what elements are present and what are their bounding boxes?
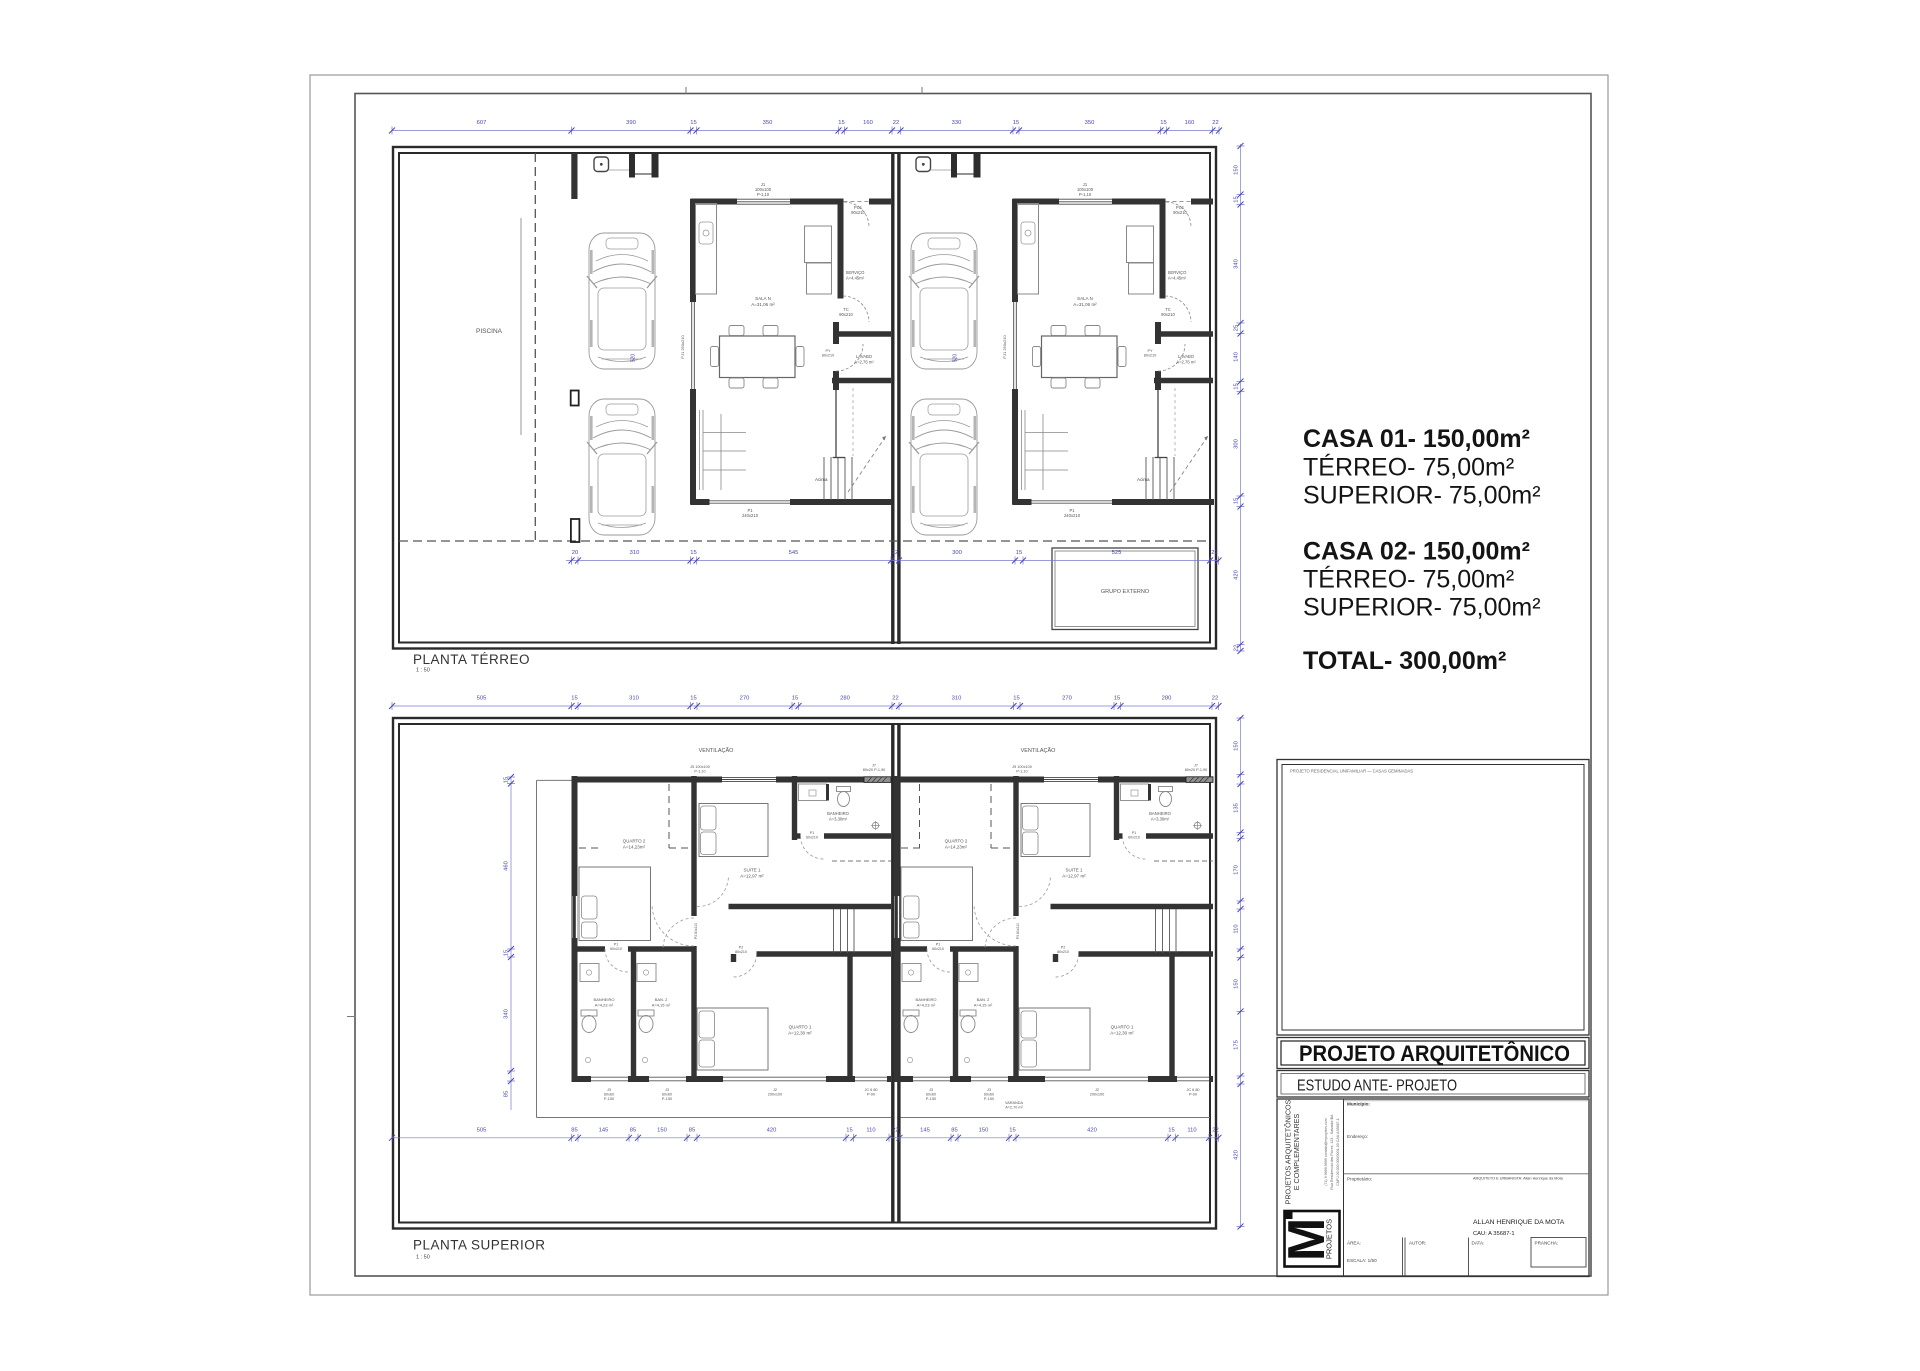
svg-text:280: 280 bbox=[840, 696, 850, 702]
svg-text:PROJETO ARQUITETÔNICO: PROJETO ARQUITETÔNICO bbox=[1299, 1041, 1570, 1066]
svg-text:A=4,23 m²: A=4,23 m² bbox=[595, 1003, 614, 1008]
svg-text:P-1,10: P-1,10 bbox=[757, 192, 770, 197]
svg-text:330: 330 bbox=[952, 120, 962, 126]
svg-text:GRUPO EXTERNO: GRUPO EXTERNO bbox=[1101, 589, 1150, 595]
svg-text:A=2,70 m²: A=2,70 m² bbox=[1005, 1106, 1023, 1110]
svg-text:420: 420 bbox=[767, 1128, 777, 1134]
svg-text:JC 6 80: JC 6 80 bbox=[864, 1088, 877, 1092]
svg-text:310: 310 bbox=[630, 550, 640, 556]
svg-text:15: 15 bbox=[504, 777, 510, 783]
svg-text:420: 420 bbox=[1234, 1150, 1240, 1160]
svg-text:Rua Residencial das Flores, 12: Rua Residencial das Flores, 123 - Salvad… bbox=[1330, 1114, 1334, 1190]
svg-text:ÁREA:: ÁREA: bbox=[1347, 1240, 1361, 1246]
svg-text:85: 85 bbox=[571, 1128, 577, 1134]
svg-text:22: 22 bbox=[893, 120, 899, 126]
svg-text:390: 390 bbox=[626, 120, 636, 126]
svg-text:PROJETO RESIDENCIAL UNIFAMILIA: PROJETO RESIDENCIAL UNIFAMILIAR — CASAS … bbox=[1290, 769, 1413, 774]
svg-text:CASA 02- 150,00m²: CASA 02- 150,00m² bbox=[1303, 538, 1530, 566]
svg-text:160: 160 bbox=[1185, 120, 1195, 126]
svg-text:J2: J2 bbox=[773, 1088, 777, 1092]
svg-text:QUARTO 1: QUARTO 1 bbox=[789, 1025, 812, 1030]
svg-text:1 : 50: 1 : 50 bbox=[416, 668, 430, 674]
svg-text:150: 150 bbox=[1234, 979, 1240, 989]
svg-text:22: 22 bbox=[1212, 120, 1218, 126]
svg-text:DATA:: DATA: bbox=[1472, 1241, 1485, 1246]
svg-text:TÉRREO- 75,00m²: TÉRREO- 75,00m² bbox=[1303, 453, 1514, 482]
svg-text:TÉRREO- 75,00m²: TÉRREO- 75,00m² bbox=[1303, 565, 1514, 594]
svg-text:ESCALA: 1/50: ESCALA: 1/50 bbox=[1347, 1258, 1377, 1263]
svg-text:80x20 P-1,90: 80x20 P-1,90 bbox=[863, 768, 886, 772]
svg-text:BAN. 2: BAN. 2 bbox=[655, 997, 668, 1002]
svg-text:TOTAL- 300,00m²: TOTAL- 300,00m² bbox=[1303, 647, 1506, 675]
svg-text:SALA N: SALA N bbox=[755, 296, 771, 301]
svg-text:15: 15 bbox=[690, 696, 696, 702]
svg-text:85: 85 bbox=[630, 1128, 636, 1134]
svg-text:420: 420 bbox=[1234, 570, 1240, 580]
svg-text:505: 505 bbox=[477, 696, 487, 702]
svg-text:340: 340 bbox=[1234, 259, 1240, 269]
svg-text:145: 145 bbox=[599, 1128, 609, 1134]
svg-text:350: 350 bbox=[1085, 120, 1095, 126]
svg-text:BANHEIRO: BANHEIRO bbox=[827, 811, 850, 816]
svg-text:160: 160 bbox=[863, 120, 873, 126]
svg-text:PJ1 250x210: PJ1 250x210 bbox=[680, 335, 685, 359]
svg-text:15: 15 bbox=[690, 550, 696, 556]
svg-text:22: 22 bbox=[892, 1128, 898, 1134]
svg-text:150: 150 bbox=[1234, 741, 1240, 751]
svg-text:310: 310 bbox=[629, 696, 639, 702]
svg-text:520: 520 bbox=[953, 354, 959, 363]
svg-text:240x210: 240x210 bbox=[742, 513, 759, 518]
svg-text:15: 15 bbox=[1234, 383, 1240, 389]
svg-text:PISCINA: PISCINA bbox=[476, 328, 503, 335]
svg-text:15: 15 bbox=[1160, 120, 1166, 126]
svg-text:80x210: 80x210 bbox=[822, 354, 834, 358]
svg-text:Endereço:: Endereço: bbox=[1347, 1134, 1368, 1139]
svg-text:A=4,45m²: A=4,45m² bbox=[846, 276, 865, 281]
svg-text:CASA 01- 150,00m²: CASA 01- 150,00m² bbox=[1303, 425, 1530, 453]
svg-text:VENTILAÇÃO: VENTILAÇÃO bbox=[699, 747, 735, 754]
svg-text:A=14,23m²: A=14,23m² bbox=[623, 845, 646, 850]
svg-text:520: 520 bbox=[631, 354, 637, 363]
svg-text:80x210: 80x210 bbox=[735, 950, 747, 954]
svg-text:90x210: 90x210 bbox=[839, 312, 853, 317]
svg-text:PLANTA SUPERIOR: PLANTA SUPERIOR bbox=[413, 1238, 546, 1253]
svg-text:135: 135 bbox=[1234, 803, 1240, 813]
svg-text:175: 175 bbox=[1234, 1040, 1240, 1050]
svg-text:PY: PY bbox=[825, 349, 831, 353]
svg-text:15: 15 bbox=[1013, 120, 1019, 126]
svg-text:J3: J3 bbox=[665, 1088, 669, 1092]
svg-text:22: 22 bbox=[1212, 1128, 1218, 1134]
svg-text:J3: J3 bbox=[607, 1088, 611, 1092]
svg-text:(71) 9 9999-9999 contato@mpro: (71) 9 9999-9999 contato@mprojetos.com bbox=[1324, 1118, 1328, 1186]
svg-text:15: 15 bbox=[1114, 696, 1120, 702]
svg-text:60x60: 60x60 bbox=[604, 1093, 614, 1097]
svg-text:60x210: 60x210 bbox=[806, 836, 818, 840]
svg-text:VENTILAÇÃO: VENTILAÇÃO bbox=[1021, 747, 1057, 754]
svg-text:BANHEIRO: BANHEIRO bbox=[594, 997, 615, 1002]
svg-text:15: 15 bbox=[571, 696, 577, 702]
svg-text:15: 15 bbox=[504, 950, 510, 956]
svg-text:85: 85 bbox=[689, 1128, 695, 1134]
svg-text:E COMPLEMENTARES: E COMPLEMENTARES bbox=[1292, 1114, 1301, 1191]
svg-text:60x60: 60x60 bbox=[662, 1093, 672, 1097]
svg-text:J7: J7 bbox=[872, 764, 876, 768]
svg-text:85: 85 bbox=[504, 1091, 510, 1097]
svg-text:PLANTA TÉRREO: PLANTA TÉRREO bbox=[413, 652, 530, 667]
svg-text:300: 300 bbox=[952, 550, 962, 556]
svg-text:200x100: 200x100 bbox=[768, 1093, 783, 1097]
svg-text:ARQUITETO E URBANISTA: Allan H: ARQUITETO E URBANISTA: Allan Henrique da… bbox=[1473, 1177, 1564, 1181]
svg-text:A=12,97 m²: A=12,97 m² bbox=[740, 874, 764, 879]
svg-text:22: 22 bbox=[1212, 696, 1218, 702]
svg-text:15: 15 bbox=[690, 120, 696, 126]
svg-text:150: 150 bbox=[979, 1128, 989, 1134]
svg-text:AUTOR:: AUTOR: bbox=[1409, 1241, 1426, 1246]
svg-text:A=2,76 m²: A=2,76 m² bbox=[854, 360, 874, 365]
svg-text:85: 85 bbox=[951, 1128, 957, 1134]
svg-text:110: 110 bbox=[866, 1128, 875, 1134]
svg-text:505: 505 bbox=[477, 1128, 487, 1134]
svg-text:P-90: P-90 bbox=[867, 1093, 875, 1097]
svg-text:15: 15 bbox=[1013, 696, 1019, 702]
svg-text:15: 15 bbox=[792, 696, 798, 702]
svg-text:SUPERIOR- 75,00m²: SUPERIOR- 75,00m² bbox=[1303, 594, 1541, 622]
svg-text:607: 607 bbox=[477, 120, 487, 126]
svg-text:SUITE 1: SUITE 1 bbox=[743, 868, 761, 873]
svg-text:15: 15 bbox=[1016, 550, 1022, 556]
svg-text:A=31,06 m²: A=31,06 m² bbox=[751, 302, 775, 307]
svg-text:LAVABO: LAVABO bbox=[856, 354, 873, 359]
svg-text:P2: P2 bbox=[739, 946, 743, 950]
svg-text:460: 460 bbox=[504, 861, 510, 871]
svg-text:340: 340 bbox=[504, 1009, 510, 1019]
svg-text:270: 270 bbox=[1062, 696, 1072, 702]
svg-text:150: 150 bbox=[1234, 165, 1240, 175]
svg-text:150: 150 bbox=[657, 1128, 667, 1134]
svg-text:SUPERIOR- 75,00m²: SUPERIOR- 75,00m² bbox=[1303, 482, 1541, 510]
svg-text:P-150: P-150 bbox=[604, 1097, 614, 1101]
svg-text:ALLAN HENRIQUE DA MOTA: ALLAN HENRIQUE DA MOTA bbox=[1473, 1219, 1565, 1226]
svg-text:Proprietário:: Proprietário: bbox=[1347, 1177, 1372, 1182]
svg-text:22: 22 bbox=[1234, 645, 1240, 651]
svg-text:310: 310 bbox=[952, 696, 962, 702]
svg-text:350: 350 bbox=[763, 120, 773, 126]
svg-text:20: 20 bbox=[572, 550, 578, 556]
svg-text:VARANDA: VARANDA bbox=[1005, 1101, 1024, 1105]
svg-text:CNPJ 00.000.000/0001-00 CAU A: CNPJ 00.000.000/0001-00 CAU A35687-1 bbox=[1336, 1118, 1340, 1186]
svg-text:PROJETOS: PROJETOS bbox=[1325, 1219, 1334, 1259]
svg-text:P-150: P-150 bbox=[662, 1097, 672, 1101]
svg-text:Acima: Acima bbox=[815, 477, 828, 482]
svg-text:Município:: Município: bbox=[1347, 1102, 1370, 1107]
svg-text:25: 25 bbox=[1234, 325, 1240, 331]
svg-text:SERVIÇO: SERVIÇO bbox=[846, 270, 866, 275]
svg-text:525: 525 bbox=[1112, 550, 1122, 556]
svg-text:ESTUDO ANTE- PROJETO: ESTUDO ANTE- PROJETO bbox=[1297, 1078, 1457, 1095]
svg-text:A=3,30m²: A=3,30m² bbox=[829, 817, 848, 822]
svg-text:170: 170 bbox=[1234, 865, 1240, 875]
svg-text:140: 140 bbox=[1234, 352, 1240, 362]
svg-text:15: 15 bbox=[846, 1128, 852, 1134]
svg-text:15: 15 bbox=[1168, 1128, 1174, 1134]
svg-text:22: 22 bbox=[1211, 550, 1217, 556]
svg-text:15: 15 bbox=[1234, 196, 1240, 202]
svg-text:QUARTO 2: QUARTO 2 bbox=[623, 839, 646, 844]
svg-text:15: 15 bbox=[1234, 498, 1240, 504]
svg-text:545: 545 bbox=[789, 550, 799, 556]
svg-text:15: 15 bbox=[1009, 1128, 1015, 1134]
svg-text:CAU: A 35687-1: CAU: A 35687-1 bbox=[1473, 1231, 1515, 1237]
svg-text:P3 80x210: P3 80x210 bbox=[694, 923, 698, 939]
svg-text:15: 15 bbox=[838, 120, 844, 126]
svg-text:300: 300 bbox=[1234, 439, 1240, 449]
svg-text:1 : 50: 1 : 50 bbox=[416, 1255, 430, 1261]
svg-text:110: 110 bbox=[1187, 1128, 1196, 1134]
svg-text:A=12,30 m²: A=12,30 m² bbox=[788, 1031, 812, 1036]
svg-text:P-1,10: P-1,10 bbox=[694, 770, 705, 774]
svg-text:270: 270 bbox=[740, 696, 750, 702]
svg-text:P1: P1 bbox=[810, 831, 814, 835]
svg-text:110: 110 bbox=[1234, 924, 1240, 933]
svg-text:420: 420 bbox=[1087, 1128, 1097, 1134]
svg-text:60x210: 60x210 bbox=[610, 947, 622, 951]
svg-text:22: 22 bbox=[892, 550, 898, 556]
svg-text:145: 145 bbox=[920, 1128, 930, 1134]
svg-text:22: 22 bbox=[892, 696, 898, 702]
svg-text:P1: P1 bbox=[614, 943, 618, 947]
svg-text:A=4,15 m²: A=4,15 m² bbox=[652, 1003, 671, 1008]
svg-text:280: 280 bbox=[1162, 696, 1172, 702]
svg-text:J5 100x100: J5 100x100 bbox=[690, 765, 710, 769]
svg-text:PRANCHA:: PRANCHA: bbox=[1535, 1241, 1559, 1246]
